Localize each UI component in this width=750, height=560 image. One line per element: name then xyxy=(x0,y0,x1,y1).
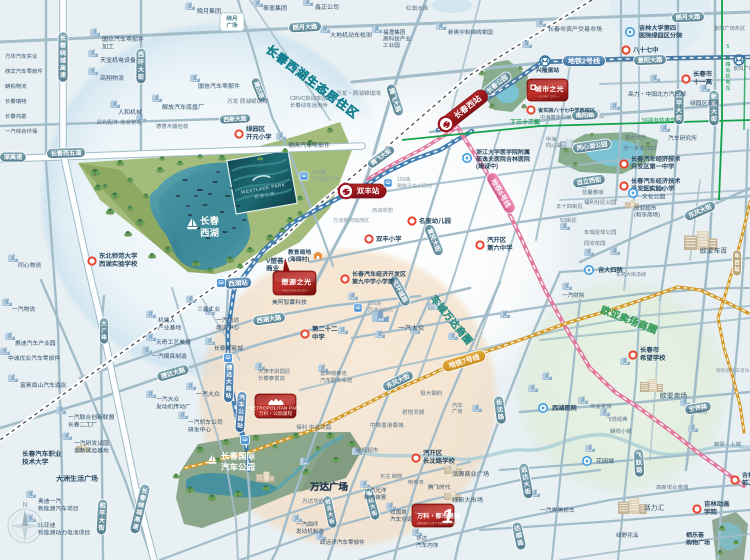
svg-text:万科·都市里程: 万科·都市里程 xyxy=(416,511,461,520)
svg-text:德惠木器包装: 德惠木器包装 xyxy=(156,122,189,130)
svg-text:腾飞时代: 腾飞时代 xyxy=(428,483,451,491)
svg-text:解放汽车底盘厂: 解放汽车底盘厂 xyxy=(162,102,204,111)
svg-text:一汽模具制造: 一汽模具制造 xyxy=(152,351,187,360)
svg-text:彩利配件 信发管理: 彩利配件 信发管理 xyxy=(97,118,142,126)
svg-text:汽车研究所: 汽车研究所 xyxy=(668,133,697,142)
svg-text:城市之光: 城市之光 xyxy=(535,84,564,94)
svg-text:西湖家园: 西湖家园 xyxy=(372,207,393,214)
svg-text:速: 速 xyxy=(60,70,67,79)
svg-text:绿野花溪: 绿野花溪 xyxy=(616,531,639,539)
svg-text:泓源商业广场: 泓源商业广场 xyxy=(452,469,489,478)
svg-text:高新悦众食城: 高新悦众食城 xyxy=(656,483,689,491)
svg-text:恒大御府: 恒大御府 xyxy=(420,389,443,397)
svg-text:长春市资产交易市场: 长春市资产交易市场 xyxy=(548,24,602,33)
svg-text:中诚优业汽车零部件: 中诚优业汽车零部件 xyxy=(8,353,60,362)
svg-text:一汽奔腾轿车: 一汽奔腾轿车 xyxy=(540,505,575,514)
svg-text:明秀湾: 明秀湾 xyxy=(408,479,424,486)
svg-text:站: 站 xyxy=(225,390,231,399)
svg-text:花园城: 花园城 xyxy=(596,456,614,465)
svg-text:天一家源1953: 天一家源1953 xyxy=(623,144,657,152)
svg-text:名奎幼儿园: 名奎幼儿园 xyxy=(419,216,452,225)
svg-text:高力·中国北方汽贸城: 高力·中国北方汽贸城 xyxy=(628,89,686,98)
svg-text:汽车工人文化公园: 汽车工人文化公园 xyxy=(642,184,665,200)
svg-text:朝柏物流: 朝柏物流 xyxy=(5,82,27,90)
svg-text:东北师范大学西湖实验学校: 东北师范大学西湖实验学校 xyxy=(99,251,138,268)
svg-text:一汽大众: 一汽大众 xyxy=(398,322,425,332)
svg-text:一汽综合环保: 一汽综合环保 xyxy=(5,127,38,135)
svg-text:— MAOYUAN ELITE —: — MAOYUAN ELITE — xyxy=(279,289,311,293)
svg-text:国信汽车零部件: 国信汽车零部件 xyxy=(198,81,240,90)
svg-text:东庄 颐园: 东庄 颐园 xyxy=(380,473,402,480)
svg-text:一汽凯达培训中心: 一汽凯达培训中心 xyxy=(216,315,239,331)
svg-text:53街区: 53街区 xyxy=(560,216,577,224)
svg-text:万龙·西湖锦珑湾: 万龙·西湖锦珑湾 xyxy=(336,89,381,97)
svg-text:VANKE CITY MILESTONE: VANKE CITY MILESTONE xyxy=(417,521,458,526)
svg-text:N: N xyxy=(22,500,27,510)
svg-text:西湖: 西湖 xyxy=(200,225,220,239)
svg-text:万达华府: 万达华府 xyxy=(302,497,325,505)
svg-text:福利社区公园: 福利社区公园 xyxy=(584,198,616,206)
svg-text:泰富集团: 泰富集团 xyxy=(263,3,287,12)
svg-text:飞悦经典: 飞悦经典 xyxy=(606,415,628,423)
svg-text:万龙 西湖银珑城: 万龙 西湖银珑城 xyxy=(227,97,268,105)
svg-text:御翠·上城: 御翠·上城 xyxy=(714,440,742,448)
svg-text:汽车广场: 汽车广场 xyxy=(452,402,462,415)
svg-text:万龙银河城西区: 万龙银河城西区 xyxy=(333,217,369,224)
svg-text:大洲生活广场: 大洲生活广场 xyxy=(56,474,98,484)
svg-text:传金星城: 传金星城 xyxy=(590,402,612,410)
svg-text:地铁2号线: 地铁2号线 xyxy=(568,56,600,66)
svg-text:宝翠雅居: 宝翠雅居 xyxy=(686,407,708,415)
svg-text:大地机动车检测: 大地机动车检测 xyxy=(330,30,372,39)
svg-text:56路有轨电车: 56路有轨电车 xyxy=(642,116,676,124)
svg-text:一汽财院: 一汽财院 xyxy=(562,291,585,299)
svg-text:西文汽车零部件: 西文汽车零部件 xyxy=(5,67,43,75)
svg-text:丁三十三街: 丁三十三街 xyxy=(510,117,540,126)
svg-text:一汽大众: 一汽大众 xyxy=(196,389,220,398)
svg-text:中铁香港春城: 中铁香港春城 xyxy=(370,421,404,429)
svg-text:高翔物流: 高翔物流 xyxy=(100,73,124,82)
svg-text:富奥南山汽车酒店: 富奥南山汽车酒店 xyxy=(20,380,67,389)
svg-text:君悦天城: 君悦天城 xyxy=(402,408,425,416)
svg-text:景阳广场东区: 景阳广场东区 xyxy=(714,25,745,32)
svg-text:朗月大路: 朗月大路 xyxy=(675,12,701,22)
svg-text:永辉超市: 永辉超市 xyxy=(356,446,379,454)
svg-text:街: 街 xyxy=(97,523,105,532)
svg-text:汽车公园: 汽车公园 xyxy=(221,461,255,473)
svg-text:鑫正公司: 鑫正公司 xyxy=(315,2,339,11)
svg-text:惠迪汽车产业园: 惠迪汽车产业园 xyxy=(15,338,56,347)
svg-text:一汽研发试园创新试验基地: 一汽研发试园创新试验基地 xyxy=(74,438,109,454)
svg-text:兴隆堡站: 兴隆堡站 xyxy=(536,65,559,74)
svg-text:教育局地(海阔村): 教育局地(海阔村) xyxy=(287,247,311,263)
svg-text:吉林省前卫医院: 吉林省前卫医院 xyxy=(742,470,750,487)
svg-text:欧亚超市(和乐商场): 欧亚超市(和乐商场) xyxy=(634,204,660,218)
svg-text:双丰小学: 双丰小学 xyxy=(375,234,402,243)
svg-text:一汽光洋转向装置: 一汽光洋转向装置 xyxy=(364,486,387,501)
svg-text:一汽物流: 一汽物流 xyxy=(12,304,35,313)
svg-text:CRVC拟动车园长春动车运用所: CRVC拟动车园长春动车运用所 xyxy=(290,94,328,109)
svg-text:西湖站: 西湖站 xyxy=(228,277,249,288)
svg-text:天奇工艺美器: 天奇工艺美器 xyxy=(156,337,191,346)
svg-text:站: 站 xyxy=(237,420,244,429)
svg-text:五十四街区: 五十四街区 xyxy=(556,202,584,210)
svg-text:街: 街 xyxy=(675,113,683,122)
svg-text:三鑫工业: 三鑫工业 xyxy=(197,304,220,313)
svg-text:万达广场: 万达广场 xyxy=(309,479,349,493)
svg-text:车城足球公园: 车城足球公园 xyxy=(584,228,616,236)
svg-text:天一家源: 天一家源 xyxy=(660,155,680,162)
svg-text:德席汽车零部件: 德席汽车零部件 xyxy=(288,140,330,149)
svg-text:新奥宇和锦绣家园: 新奥宇和锦绣家园 xyxy=(448,28,493,36)
svg-text:晚月集团: 晚月集团 xyxy=(197,6,221,15)
svg-text:欧亚车百: 欧亚车百 xyxy=(700,245,727,255)
svg-text:政远洋汽车零部件: 政远洋汽车零部件 xyxy=(320,538,365,546)
svg-text:蓝馨雅宿: 蓝馨雅宿 xyxy=(582,188,604,196)
svg-text:长春市十一高: 长春市十一高 xyxy=(693,69,713,86)
svg-text:同心物流: 同心物流 xyxy=(18,260,41,269)
svg-text:保利 中央公园: 保利 中央公园 xyxy=(296,423,332,431)
svg-text:八十七中: 八十七中 xyxy=(632,45,659,54)
svg-text:景阳广场站: 景阳广场站 xyxy=(733,65,750,72)
svg-text:西新大路: 西新大路 xyxy=(223,113,247,123)
svg-text:人和机械: 人和机械 xyxy=(118,107,142,116)
svg-text:车: 车 xyxy=(725,85,730,92)
svg-text:双丰站: 双丰站 xyxy=(356,186,380,197)
svg-text:长春西五道: 长春西五道 xyxy=(50,148,82,158)
svg-text:长春瑞特: 长春瑞特 xyxy=(5,97,27,105)
svg-text:万科·公园里程: 万科·公园里程 xyxy=(259,410,293,417)
svg-text:西湖医院: 西湖医院 xyxy=(552,403,578,412)
svg-text:景阳大路: 景阳大路 xyxy=(636,55,663,65)
svg-text:朗月大路: 朗月大路 xyxy=(292,22,318,32)
svg-text:深高速: 深高速 xyxy=(4,152,23,161)
svg-text:— GLORY CITY —: — GLORY CITY — xyxy=(535,95,560,99)
svg-text:红旗水库: 红旗水库 xyxy=(406,4,429,12)
svg-text:天宝机电设备: 天宝机电设备 xyxy=(100,55,136,64)
svg-text:碧水云天: 碧水云天 xyxy=(625,133,647,141)
svg-text:欧亚卖场: 欧亚卖场 xyxy=(660,390,687,400)
svg-text:站: 站 xyxy=(734,265,740,273)
svg-text:绿新大市场: 绿新大市场 xyxy=(452,495,483,504)
svg-text:活力汇: 活力汇 xyxy=(644,502,665,512)
svg-text:长春贸易城: 长春贸易城 xyxy=(214,343,243,352)
svg-text:绕月广场: 绕月广场 xyxy=(226,14,238,29)
svg-text:东风大街沿线: 东风大街沿线 xyxy=(616,271,646,278)
svg-text:绿园区政府: 绿园区政府 xyxy=(690,98,719,107)
svg-text:万华汽车实业: 万华汽车实业 xyxy=(5,52,38,60)
svg-text:中海寰宇公馆: 中海寰宇公馆 xyxy=(540,114,571,121)
svg-text:街: 街 xyxy=(137,72,145,81)
svg-text:美阿智囊科技: 美阿智囊科技 xyxy=(272,297,307,306)
svg-text:长春鸿基: 长春鸿基 xyxy=(5,112,27,120)
svg-text:懋源之光: 懋源之光 xyxy=(282,278,312,288)
svg-text:朝阳小镇: 朝阳小镇 xyxy=(610,427,632,435)
svg-text:路: 路 xyxy=(101,333,107,341)
svg-text:轻轨欧亚车百站: 轻轨欧亚车百站 xyxy=(716,367,750,374)
svg-text:街: 街 xyxy=(710,114,718,123)
svg-text:同欣花园: 同欣花园 xyxy=(584,239,606,247)
